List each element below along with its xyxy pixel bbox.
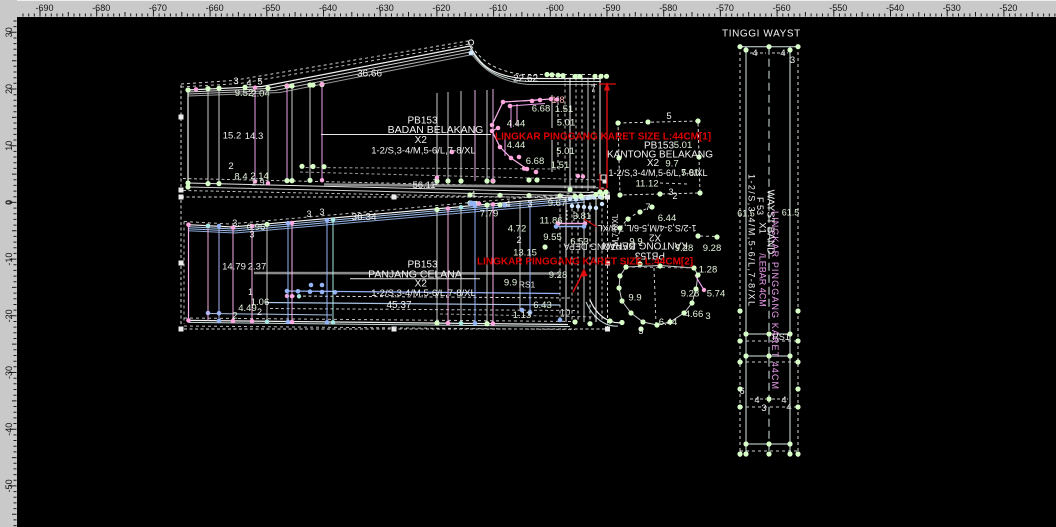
svg-text:-620: -620 <box>432 3 450 13</box>
svg-text:-540: -540 <box>886 3 904 13</box>
svg-text:3: 3 <box>527 199 532 209</box>
svg-text:8.4: 8.4 <box>234 171 247 182</box>
svg-text:3: 3 <box>761 403 766 414</box>
svg-text:F 53: F 53 <box>755 197 765 215</box>
svg-text:2: 2 <box>672 191 677 201</box>
svg-text:4.49: 4.49 <box>238 303 257 314</box>
svg-text:30: 30 <box>4 27 14 37</box>
svg-text:9.55: 9.55 <box>543 232 562 243</box>
svg-text:4: 4 <box>752 48 757 59</box>
svg-text:1-2/S,3-4/M,5-6/L,7-8/XL: 1-2/S,3-4/M,5-6/L,7-8/XL <box>371 288 476 299</box>
svg-text:-650: -650 <box>262 3 280 13</box>
svg-text:/LEBAR 4CM: /LEBAR 4CM <box>758 253 768 307</box>
svg-text:4.44: 4.44 <box>507 119 526 130</box>
svg-text:3: 3 <box>306 209 311 219</box>
svg-text:-660: -660 <box>206 3 224 13</box>
svg-text:4: 4 <box>780 48 785 59</box>
svg-text:4: 4 <box>470 190 475 200</box>
svg-text:7: 7 <box>645 202 650 212</box>
svg-text:9.9: 9.9 <box>628 293 641 304</box>
svg-text:-40: -40 <box>4 423 14 436</box>
svg-text:4: 4 <box>754 395 759 406</box>
svg-text:-640: -640 <box>319 3 337 13</box>
svg-text:-520: -520 <box>999 3 1017 13</box>
svg-text:3: 3 <box>705 311 710 322</box>
svg-text:4.66: 4.66 <box>685 309 704 320</box>
svg-text:-50: -50 <box>4 479 14 492</box>
svg-text:1.51: 1.51 <box>551 160 570 171</box>
svg-text:7.79: 7.79 <box>480 209 499 220</box>
svg-text:3: 3 <box>319 207 324 217</box>
svg-text:2: 2 <box>228 161 233 172</box>
svg-text:2.37: 2.37 <box>248 262 267 273</box>
svg-text:-560: -560 <box>773 3 791 13</box>
svg-text:5.01: 5.01 <box>681 168 699 178</box>
svg-text:3.: 3. <box>232 218 240 228</box>
svg-text:6.53: 6.53 <box>570 237 589 248</box>
svg-text:61.5: 61.5 <box>782 208 800 218</box>
svg-text:-670: -670 <box>149 3 167 13</box>
svg-text:14.3: 14.3 <box>245 131 264 142</box>
svg-text:5: 5 <box>257 77 262 88</box>
svg-text:6.68: 6.68 <box>526 156 545 167</box>
svg-text:LINGKAR PINGGANG KARET 44CM: LINGKAR PINGGANG KARET 44CM <box>770 211 780 389</box>
svg-text:-20: -20 <box>4 309 14 322</box>
svg-text:2.04: 2.04 <box>251 88 270 99</box>
svg-text:5.74: 5.74 <box>707 289 726 300</box>
svg-text:5: 5 <box>666 111 671 122</box>
svg-text:1-2/S,3-4/M,5-6/L,7-8/XL: 1-2/S,3-4/M,5-6/L,7-8/XL <box>747 174 757 306</box>
svg-text:4.44: 4.44 <box>507 140 526 151</box>
svg-text:36.34: 36.34 <box>351 212 376 223</box>
svg-text:1.13: 1.13 <box>513 310 532 321</box>
svg-text:2: 2 <box>232 311 237 321</box>
svg-text:1-2/S,3-4/M,5-6/L,7-8/XL: 1-2/S,3-4/M,5-6/L,7-8/XL <box>371 146 476 157</box>
svg-text:-30: -30 <box>4 366 14 379</box>
svg-text:X2: X2 <box>415 135 428 146</box>
svg-text:9.28: 9.28 <box>681 289 700 300</box>
svg-text:1.28: 1.28 <box>699 265 718 276</box>
svg-text:3: 3 <box>790 55 795 66</box>
svg-text:-570: -570 <box>716 3 734 13</box>
svg-text:22.62: 22.62 <box>513 74 538 85</box>
svg-text:15.2: 15.2 <box>223 131 242 142</box>
svg-text:11.12: 11.12 <box>635 179 658 190</box>
svg-text:4: 4 <box>505 199 510 209</box>
svg-text:3: 3 <box>249 230 254 240</box>
svg-text:13.15: 13.15 <box>513 248 537 259</box>
svg-text:-590: -590 <box>603 3 621 13</box>
svg-text:36.66: 36.66 <box>357 69 382 80</box>
svg-text:9.28: 9.28 <box>703 243 722 254</box>
svg-text:7: 7 <box>590 84 595 94</box>
svg-text:5.01: 5.01 <box>556 146 575 157</box>
svg-text:6.43: 6.43 <box>533 300 552 311</box>
svg-text:4: 4 <box>786 402 791 413</box>
svg-text:3: 3 <box>233 76 238 87</box>
svg-text:4.72: 4.72 <box>508 224 527 235</box>
svg-text:9.28: 9.28 <box>549 270 568 281</box>
svg-text:20: 20 <box>4 84 14 94</box>
svg-text:10: 10 <box>4 141 14 151</box>
svg-text:2.9: 2.9 <box>251 178 264 189</box>
svg-text:6: 6 <box>739 386 744 397</box>
svg-text:9.9: 9.9 <box>504 278 517 289</box>
svg-text:TINGGI WAYST: TINGGI WAYST <box>722 29 801 40</box>
svg-text:5: 5 <box>638 326 643 336</box>
svg-text:9.28: 9.28 <box>675 243 694 254</box>
svg-text:-610: -610 <box>489 3 507 13</box>
svg-text:-580: -580 <box>659 3 677 13</box>
svg-text:0: 0 <box>4 200 14 205</box>
svg-text:5.01: 5.01 <box>557 118 576 129</box>
svg-text:3.81: 3.81 <box>573 211 592 222</box>
svg-text:56.11: 56.11 <box>412 180 435 191</box>
svg-text:-630: -630 <box>376 3 394 13</box>
svg-text:-530: -530 <box>943 3 961 13</box>
svg-text:1.51: 1.51 <box>555 104 574 115</box>
svg-text:6.68: 6.68 <box>532 104 551 115</box>
svg-text:2: 2 <box>516 235 521 245</box>
svg-text:6.44: 6.44 <box>658 213 677 224</box>
svg-text:M,7-8/XL: M,7-8/XL <box>611 213 620 246</box>
svg-text:45.37: 45.37 <box>386 300 411 311</box>
svg-text:6.44: 6.44 <box>659 317 678 328</box>
svg-text:LINGKAR PINGGANG KARET SIZE L:: LINGKAR PINGGANG KARET SIZE L:44CM[2] <box>477 257 693 268</box>
svg-text:14.79: 14.79 <box>222 262 246 273</box>
svg-text:-550: -550 <box>829 3 847 13</box>
svg-text:-600: -600 <box>546 3 564 13</box>
svg-text:2: 2 <box>257 307 262 317</box>
svg-text:KANTONG BELAKANG: KANTONG BELAKANG <box>607 150 713 161</box>
svg-text:1: 1 <box>248 287 253 297</box>
svg-text:10: 10 <box>560 308 571 319</box>
svg-text:9.67: 9.67 <box>548 198 567 209</box>
svg-text:-690: -690 <box>36 3 54 13</box>
svg-text:RS1: RS1 <box>519 280 536 290</box>
svg-text:11.86: 11.86 <box>539 216 562 227</box>
svg-text:-680: -680 <box>92 3 110 13</box>
svg-text:-10: -10 <box>4 253 14 266</box>
